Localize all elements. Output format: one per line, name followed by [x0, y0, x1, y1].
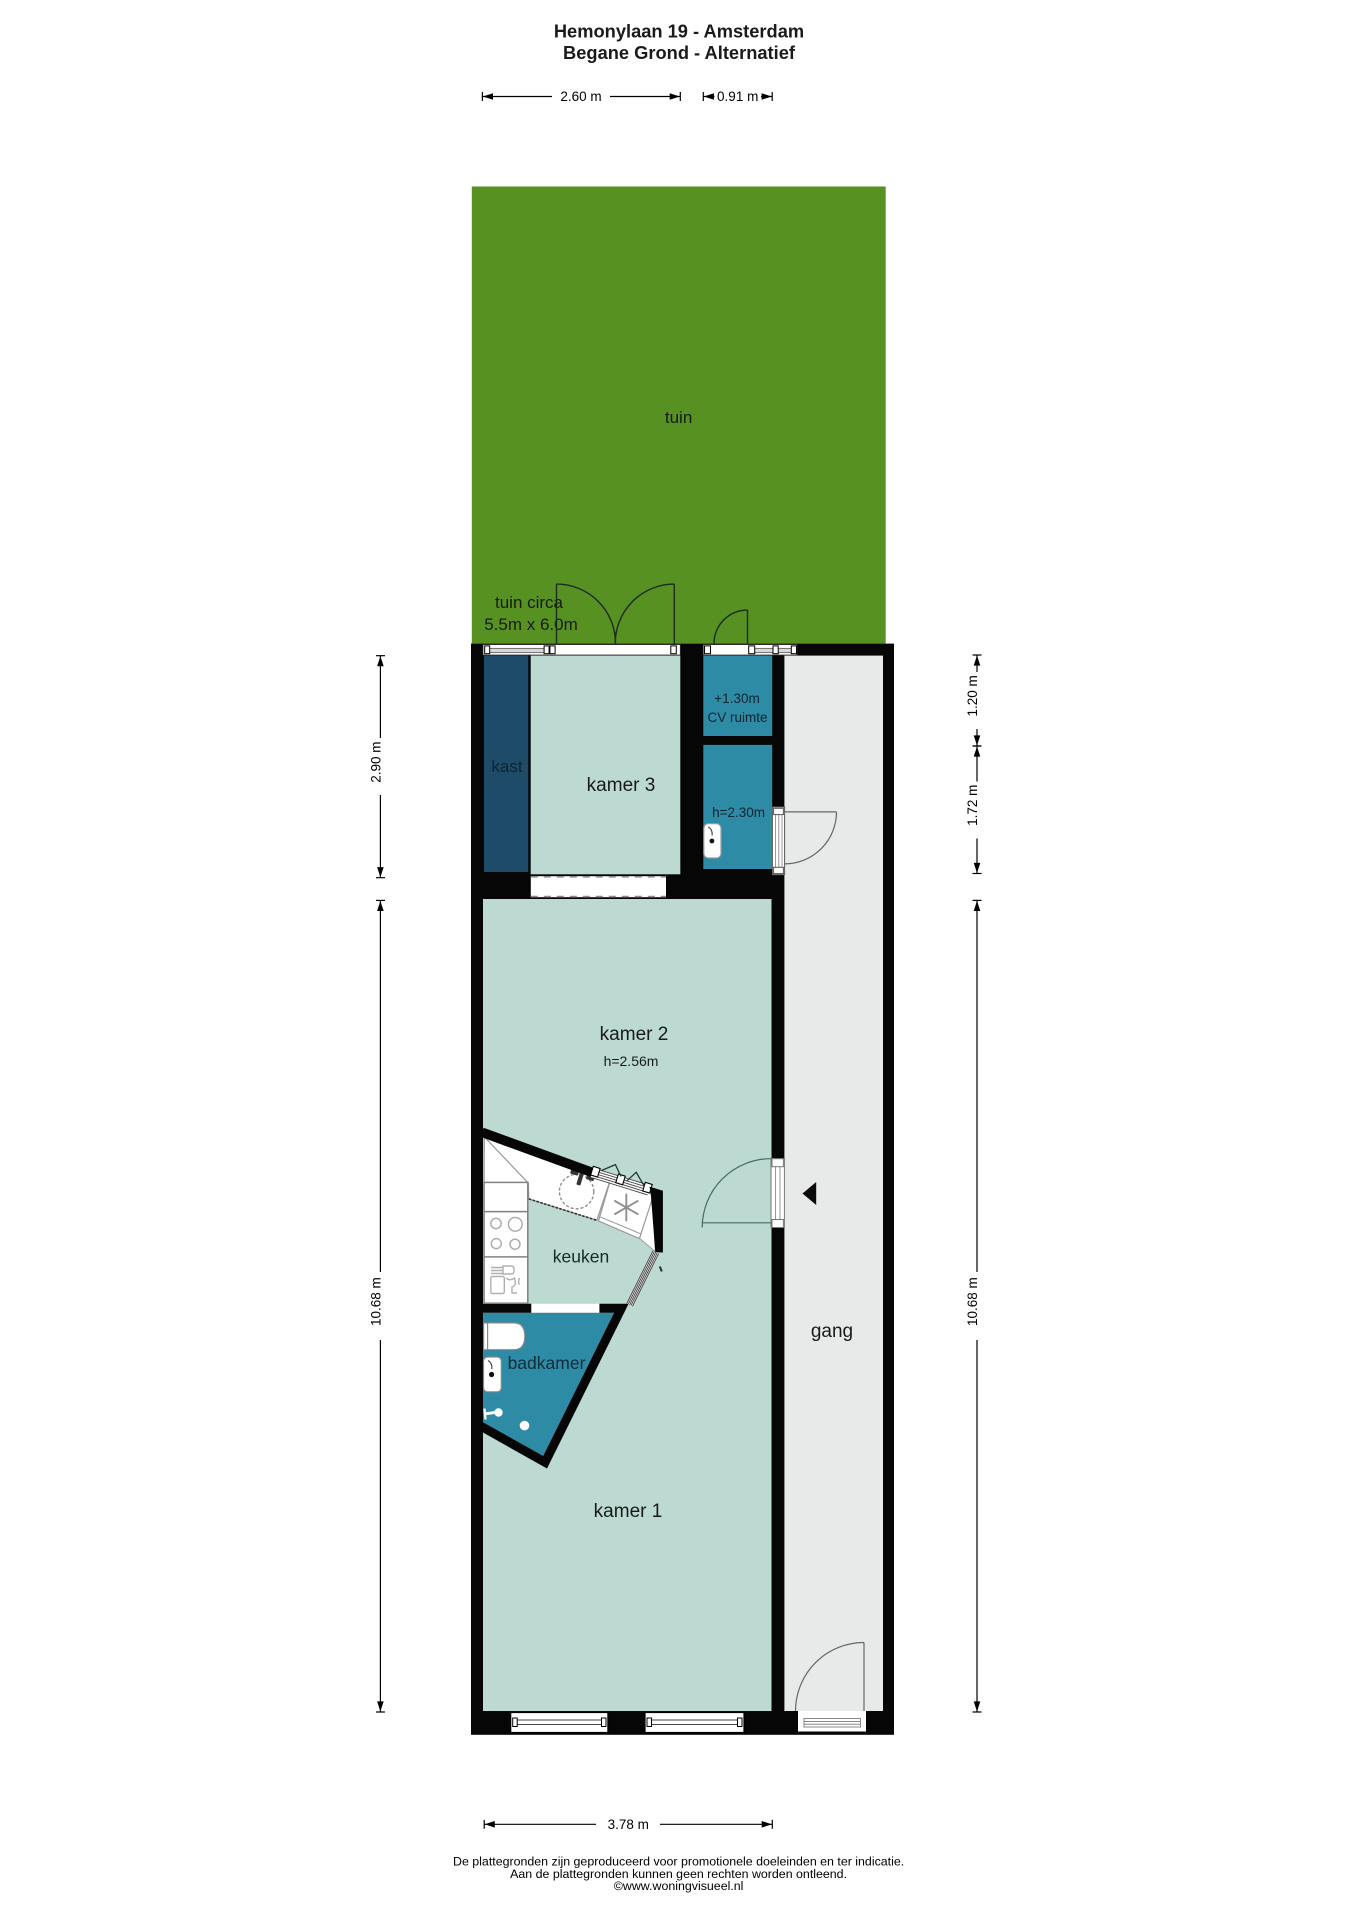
svg-text:+1.30m: +1.30m [714, 691, 759, 706]
svg-text:gang: gang [811, 1321, 853, 1342]
svg-text:3.78 m: 3.78 m [608, 1817, 649, 1832]
svg-text:Begane Grond - Alternatief: Begane Grond - Alternatief [563, 42, 796, 63]
svg-text:kamer 2: kamer 2 [600, 1024, 669, 1045]
svg-text:10.68 m: 10.68 m [965, 1277, 980, 1326]
svg-text:kast: kast [491, 757, 522, 776]
svg-text:h=2.56m: h=2.56m [604, 1053, 659, 1069]
svg-text:10.68 m: 10.68 m [368, 1277, 383, 1326]
svg-text:2.60 m: 2.60 m [560, 89, 601, 104]
svg-text:keuken: keuken [553, 1247, 609, 1267]
svg-text:2.90 m: 2.90 m [368, 741, 383, 782]
svg-text:1.72 m: 1.72 m [965, 785, 980, 826]
svg-text:©www.woningvisueel.nl: ©www.woningvisueel.nl [614, 1879, 744, 1893]
svg-text:CV ruimte: CV ruimte [707, 710, 767, 725]
svg-text:0.91 m: 0.91 m [717, 89, 758, 104]
svg-text:5.5m x 6.0m: 5.5m x 6.0m [484, 615, 578, 634]
svg-text:1.20 m: 1.20 m [965, 675, 980, 716]
svg-text:kamer 1: kamer 1 [594, 1501, 663, 1522]
svg-text:h=2.30m: h=2.30m [712, 805, 765, 820]
svg-text:kamer 3: kamer 3 [587, 775, 656, 796]
svg-text:tuin: tuin [665, 408, 692, 427]
svg-text:tuin circa: tuin circa [495, 593, 564, 612]
svg-text:badkamer: badkamer [508, 1353, 586, 1373]
svg-text:Hemonylaan 19 - Amsterdam: Hemonylaan 19 - Amsterdam [554, 21, 804, 42]
